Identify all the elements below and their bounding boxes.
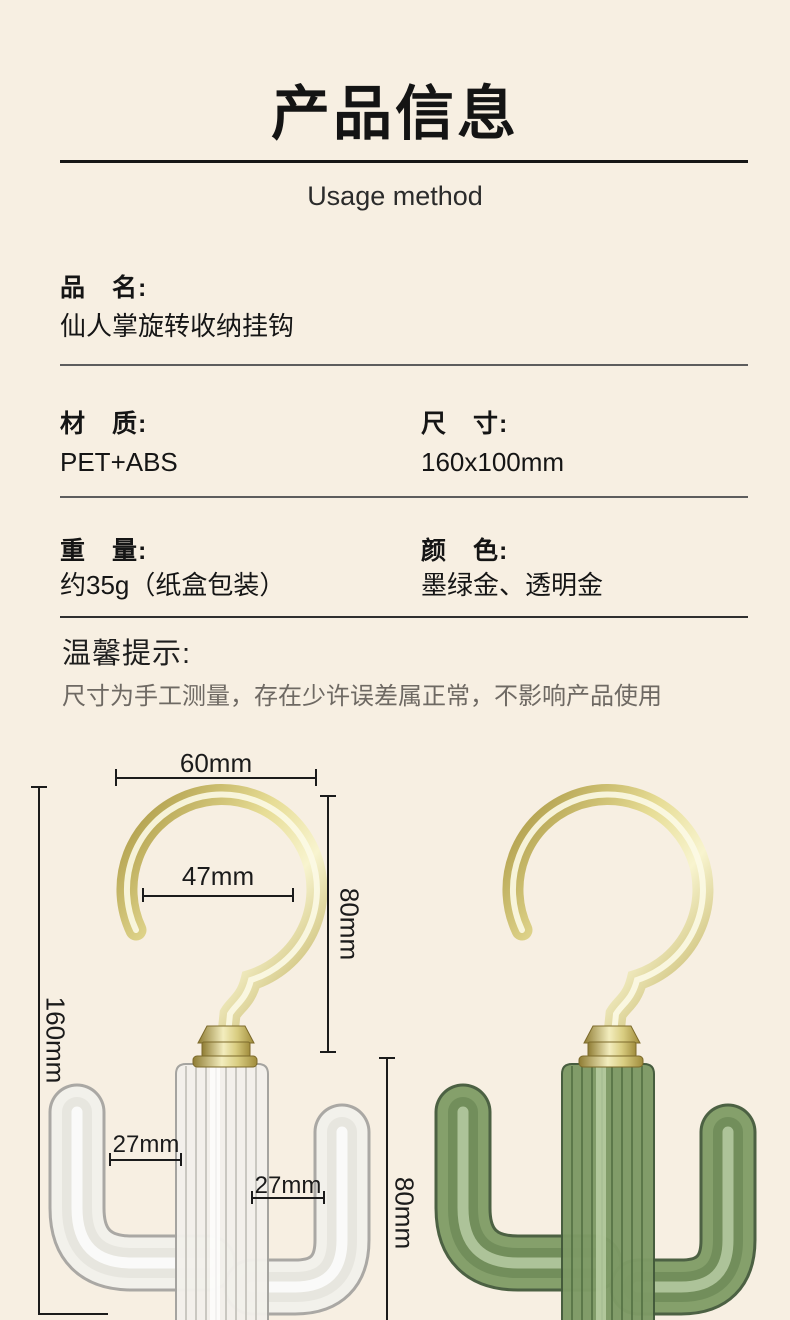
measure-line: [143, 895, 293, 897]
notice-title: 温馨提示:: [62, 630, 191, 672]
spec-material-value: PET+ABS: [60, 447, 178, 478]
measure-line: [252, 1197, 325, 1199]
trunk-highlight: [596, 1066, 606, 1320]
measure-tick: [115, 769, 117, 786]
measure-line: [116, 777, 316, 779]
divider: [60, 496, 748, 498]
measure-tick: [180, 1153, 182, 1166]
measure-line: [38, 787, 40, 1314]
gold-hook: [513, 795, 703, 1034]
page-subtitle: Usage method: [0, 181, 790, 212]
dim-left-arm-gap-label: 27mm: [113, 1131, 180, 1159]
spec-size-value: 160x100mm: [421, 447, 564, 478]
measure-tick: [379, 1057, 395, 1059]
measure-line: [386, 1058, 388, 1320]
dim-body-height-label: 80mm: [389, 1177, 420, 1249]
notice-text: 尺寸为手工测量，存在少许误差属正常，不影响产品使用: [62, 676, 662, 711]
dim-overall-height-label: 160mm: [40, 997, 71, 1084]
spec-size-label: 尺 寸:: [421, 404, 508, 440]
title-underline: [60, 160, 748, 163]
dim-hook-inner-width-label: 47mm: [182, 861, 254, 892]
divider: [60, 616, 748, 618]
trunk-highlight: [210, 1066, 220, 1320]
spec-color-value: 墨绿金、透明金: [421, 565, 603, 602]
measure-line: [110, 1159, 182, 1161]
gold-collar: [579, 1026, 643, 1067]
spec-weight-label: 重 量:: [60, 531, 147, 567]
measure-tick: [31, 786, 47, 788]
divider: [60, 364, 748, 366]
measure-line: [327, 796, 329, 1053]
product-green-cactus-hook: [463, 795, 728, 1320]
spec-name-label: 品 名:: [60, 268, 147, 304]
measure-tick: [38, 1313, 108, 1315]
spec-color-label: 颜 色:: [421, 531, 508, 567]
measure-tick: [142, 888, 144, 902]
dim-hook-height-label: 80mm: [334, 888, 365, 960]
measure-tick: [320, 1051, 336, 1053]
gold-hook: [127, 795, 317, 1034]
dim-right-arm-gap-label: 27mm: [255, 1172, 322, 1200]
spec-material-label: 材 质:: [60, 404, 147, 440]
measure-tick: [315, 769, 317, 786]
gold-collar: [193, 1026, 257, 1067]
spec-weight-value: 约35g（纸盒包装）: [60, 565, 285, 602]
page-title: 产品信息: [0, 66, 790, 151]
measure-tick: [323, 1191, 325, 1204]
dim-hook-outer-width-label: 60mm: [180, 748, 252, 779]
product-info-page: 产品信息 Usage method 品 名: 仙人掌旋转收纳挂钩 材 质: PE…: [0, 0, 790, 1320]
spec-name-value: 仙人掌旋转收纳挂钩: [60, 306, 294, 343]
measure-tick: [292, 888, 294, 902]
measure-tick: [320, 795, 336, 797]
measure-tick: [251, 1191, 253, 1204]
measure-tick: [109, 1153, 111, 1166]
